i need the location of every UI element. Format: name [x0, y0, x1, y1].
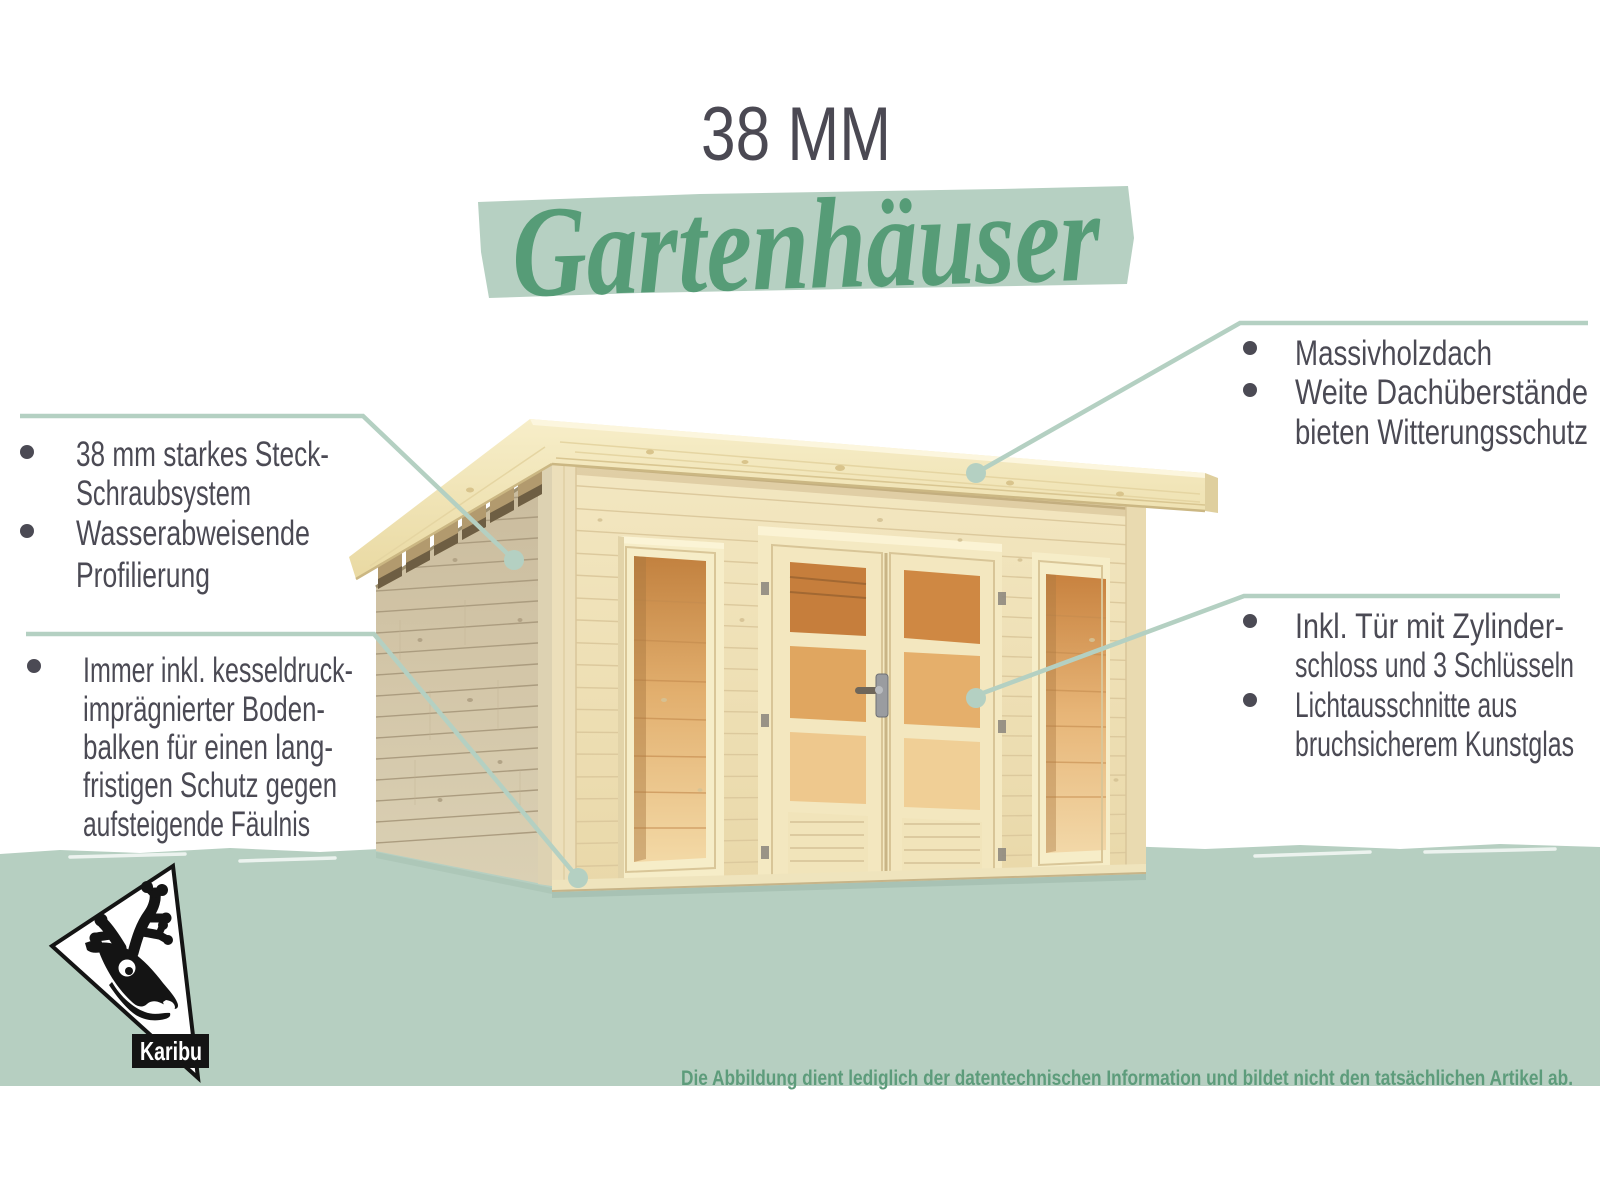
svg-text:bieten Witterungsschutz: bieten Witterungsschutz [1295, 413, 1588, 452]
svg-text:Karibu: Karibu [140, 1036, 202, 1066]
svg-text:Gartenhäuser: Gartenhäuser [510, 165, 1103, 325]
svg-text:38 mm starkes Steck-: 38 mm starkes Steck- [76, 435, 329, 474]
svg-text:fristigen Schutz gegen: fristigen Schutz gegen [83, 766, 337, 805]
svg-text:aufsteigende Fäulnis: aufsteigende Fäulnis [83, 805, 310, 844]
svg-text:Profilierung: Profilierung [76, 556, 210, 595]
svg-text:Inkl. Tür mit Zylinder-: Inkl. Tür mit Zylinder- [1295, 607, 1564, 646]
svg-text:Wasserabweisende: Wasserabweisende [76, 514, 310, 553]
svg-text:Weite Dachüberstände: Weite Dachüberstände [1295, 373, 1588, 412]
svg-text:Lichtausschnitte aus: Lichtausschnitte aus [1295, 686, 1517, 725]
svg-text:schloss und 3 Schlüsseln: schloss und 3 Schlüsseln [1295, 646, 1574, 685]
svg-text:balken für einen lang-: balken für einen lang- [83, 728, 333, 767]
svg-text:Immer inkl. kesseldruck-: Immer inkl. kesseldruck- [83, 651, 353, 690]
svg-text:38 MM: 38 MM [701, 92, 891, 177]
svg-text:imprägnierter Boden-: imprägnierter Boden- [83, 690, 325, 729]
svg-text:Schraubsystem: Schraubsystem [76, 474, 251, 513]
svg-text:Die Abbildung dient lediglich: Die Abbildung dient lediglich der datent… [681, 1067, 1573, 1090]
svg-text:bruchsicherem Kunstglas: bruchsicherem Kunstglas [1295, 725, 1574, 764]
svg-text:Massivholzdach: Massivholzdach [1295, 334, 1492, 373]
